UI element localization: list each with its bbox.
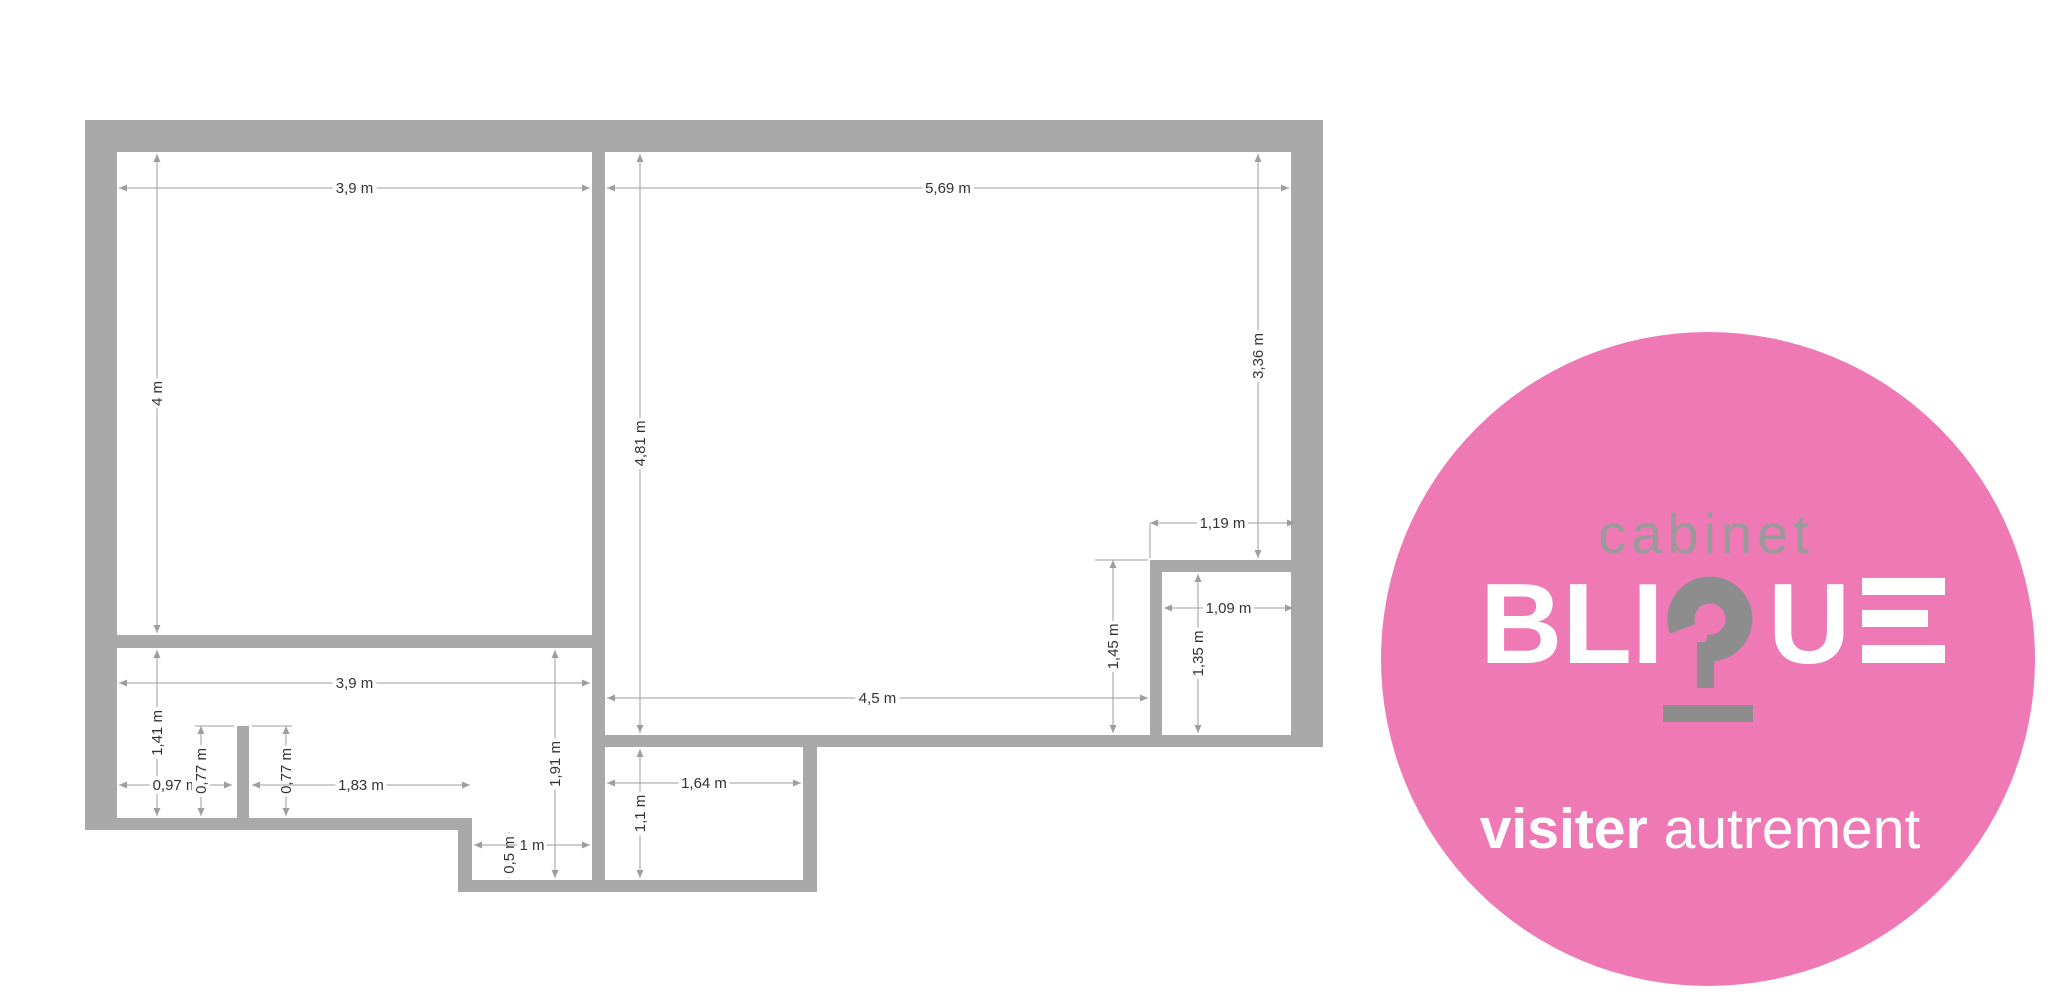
dimension-arrow xyxy=(474,842,482,849)
wall xyxy=(237,726,249,830)
logo-cabinet-label: cabinet xyxy=(1598,502,1814,565)
dimension-arrow xyxy=(462,782,470,789)
floor-plan-image: 3,9 m5,69 m4 m4,81 m3,36 m1,19 m1,09 m1,… xyxy=(0,0,2048,1008)
dimension-arrow xyxy=(1110,725,1117,733)
dimension-label: 4,5 m xyxy=(859,690,897,707)
dimension-arrow xyxy=(198,726,205,734)
tagline-bold-word: visiter xyxy=(1480,797,1648,861)
dimension-arrow xyxy=(119,680,127,687)
wall xyxy=(85,120,1323,152)
dimension-label: 1,1 m xyxy=(632,795,649,833)
dimension-arrow xyxy=(1150,520,1158,527)
dimension-arrow xyxy=(607,695,615,702)
dimension-arrow xyxy=(552,650,559,658)
dimensions-layer: 3,9 m5,69 m4 m4,81 m3,36 m1,19 m1,09 m1,… xyxy=(119,154,1295,878)
dimension-arrow xyxy=(1255,154,1262,162)
dimension-label: 1,19 m xyxy=(1200,515,1246,532)
dimension-arrow xyxy=(252,782,260,789)
wall xyxy=(803,735,817,892)
dimension-label: 1,64 m xyxy=(681,775,727,792)
dimension-label: 1,45 m xyxy=(1105,624,1122,670)
dimension-arrow xyxy=(283,726,290,734)
dimension-arrow xyxy=(154,650,161,658)
dimension-arrow xyxy=(154,808,161,816)
brand-underline xyxy=(1663,705,1753,722)
agency-logo: cabinet BLI U visiterautrement xyxy=(1381,332,2035,986)
dimension-label: 0,77 m xyxy=(278,748,295,794)
wall xyxy=(592,735,1323,747)
dimension-arrow xyxy=(283,808,290,816)
dimension-label: 4 m xyxy=(149,381,166,406)
dimension-label: 1,91 m xyxy=(547,741,564,787)
dimension-label: 1 m xyxy=(519,837,544,854)
dimension-arrow xyxy=(119,185,127,192)
wall xyxy=(592,152,605,892)
dimension-label: 1,83 m xyxy=(338,777,384,794)
dimension-label: 0,97 m xyxy=(153,777,199,794)
dimension-arrow xyxy=(1195,574,1202,582)
dimension-arrow xyxy=(1255,550,1262,558)
dimension-arrow xyxy=(1195,725,1202,733)
dimension-arrow xyxy=(793,780,801,787)
dimension-label: 3,36 m xyxy=(1250,333,1267,379)
wall xyxy=(1291,120,1323,747)
dimension-arrow xyxy=(1281,185,1289,192)
dimension-arrow xyxy=(1140,695,1148,702)
dimension-arrow xyxy=(637,870,644,878)
dimension-arrow xyxy=(154,625,161,633)
dimension-arrow xyxy=(1110,560,1117,568)
dimension-label: 1,35 m xyxy=(1190,631,1207,677)
dimension-arrow xyxy=(1164,605,1172,612)
wall xyxy=(1150,560,1162,747)
logo-tagline: visiterautrement xyxy=(1480,797,1921,861)
dimension-arrow xyxy=(582,185,590,192)
dimension-arrow xyxy=(224,782,232,789)
dimension-arrow xyxy=(637,725,644,733)
dimension-arrow xyxy=(607,185,615,192)
dimension-arrow xyxy=(582,680,590,687)
wall xyxy=(85,120,117,830)
tagline-regular-word: autrement xyxy=(1664,797,1921,861)
wall xyxy=(85,635,605,648)
dimension-arrow xyxy=(607,780,615,787)
floor-plan-page: 3,9 m5,69 m4 m4,81 m3,36 m1,19 m1,09 m1,… xyxy=(0,0,2048,1008)
dimension-label: 0,5 m xyxy=(501,836,518,874)
dimension-arrow xyxy=(552,870,559,878)
dimension-label: 5,69 m xyxy=(925,180,971,197)
dimension-arrow xyxy=(582,842,590,849)
wall xyxy=(85,818,472,830)
dimension-label: 1,41 m xyxy=(149,710,166,756)
dimension-label: 3,9 m xyxy=(336,180,374,197)
dimension-arrow xyxy=(119,782,127,789)
dimension-label: 4,81 m xyxy=(632,421,649,467)
wall xyxy=(458,880,817,892)
dimension-label: 1,09 m xyxy=(1206,600,1252,617)
dimension-arrow xyxy=(637,154,644,162)
dimension-label: 0,77 m xyxy=(193,748,210,794)
wall xyxy=(1150,560,1295,572)
dimension-label: 3,9 m xyxy=(336,675,374,692)
dimension-arrow xyxy=(198,808,205,816)
brand-name-segment-u: U xyxy=(1768,561,1850,688)
dimension-arrow xyxy=(637,749,644,757)
dimension-arrow xyxy=(154,154,161,162)
brand-name-segment-bli: BLI xyxy=(1480,561,1664,688)
